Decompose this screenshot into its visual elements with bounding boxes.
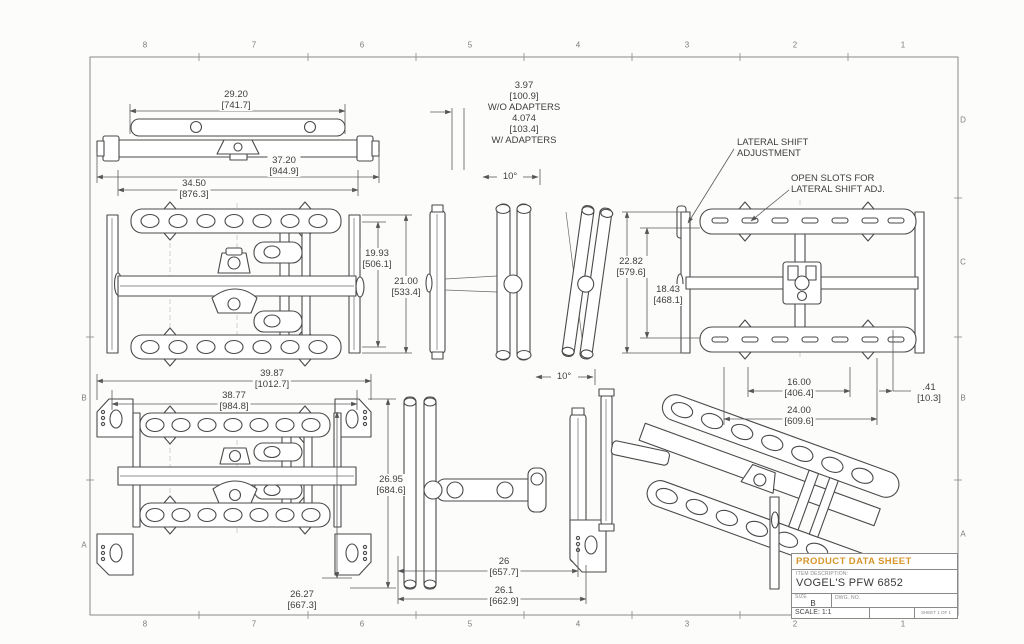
dim-inches: 3.97 bbox=[488, 80, 560, 91]
note-line: OPEN SLOTS FOR bbox=[791, 174, 885, 185]
note-line: ADJUSTMENT bbox=[737, 149, 808, 160]
dim-inches: 38.77 bbox=[219, 390, 248, 401]
title-block-item: ITEM DESCRIPTION: VOGEL'S PFW 6852 bbox=[792, 570, 957, 594]
note-open-slots: OPEN SLOTS FOR LATERAL SHIFT ADJ. bbox=[791, 174, 885, 195]
zone-top-5: 5 bbox=[468, 41, 472, 50]
dim-mm: [468.1] bbox=[653, 295, 682, 306]
zone-bottom-4: 4 bbox=[576, 620, 580, 629]
note-line: LATERAL SHIFT ADJ. bbox=[791, 185, 885, 196]
dim-mm: [1012.7] bbox=[255, 379, 289, 390]
note-lateral-shift: LATERAL SHIFT ADJUSTMENT bbox=[737, 138, 808, 159]
dim-mm: [876.3] bbox=[179, 189, 208, 200]
dim-height-26-95: 26.95 [684.6] bbox=[374, 474, 407, 496]
zone-bottom-6: 6 bbox=[360, 620, 364, 629]
zone-right-d: D bbox=[960, 116, 966, 125]
note-line: LATERAL SHIFT bbox=[737, 138, 808, 149]
zone-top-3: 3 bbox=[685, 41, 689, 50]
dim-mm: [662.9] bbox=[489, 596, 518, 607]
dim-width-34-50: 34.50 [876.3] bbox=[177, 178, 210, 200]
dim-angle-bottom: 10° bbox=[555, 371, 573, 382]
dim-inches: 26 bbox=[489, 556, 518, 567]
zone-top-7: 7 bbox=[252, 41, 256, 50]
zone-top-6: 6 bbox=[360, 41, 364, 50]
zone-bottom-3: 3 bbox=[685, 620, 689, 629]
dim-height-26-27: 26.27 [667.3] bbox=[285, 589, 318, 611]
scale-label: SCALE: 1:1 bbox=[792, 608, 870, 618]
zone-bottom-5: 5 bbox=[468, 620, 472, 629]
dim-mm: [609.6] bbox=[784, 416, 813, 427]
dim-width-38-77: 38.77 [984.8] bbox=[217, 390, 250, 412]
note-line: W/ ADAPTERS bbox=[488, 135, 560, 146]
dim-inches: 26.27 bbox=[287, 589, 316, 600]
zone-bottom-8: 8 bbox=[143, 620, 147, 629]
dim-mm: [657.7] bbox=[489, 567, 518, 578]
zone-right-a: A bbox=[960, 530, 965, 539]
dim-mm: [984.8] bbox=[219, 401, 248, 412]
zone-top-4: 4 bbox=[576, 41, 580, 50]
zone-top-8: 8 bbox=[143, 41, 147, 50]
dim-height-18-43: 18.43 [468.1] bbox=[651, 284, 684, 306]
zone-top-1: 1 bbox=[901, 41, 905, 50]
dim-width-26-1: 26.1 [662.9] bbox=[487, 585, 520, 607]
zone-bottom-2: 2 bbox=[793, 620, 797, 629]
dim-width-39-87: 39.87 [1012.7] bbox=[253, 368, 291, 390]
view-wall-plate bbox=[677, 202, 924, 359]
zone-left-a: A bbox=[81, 541, 86, 550]
size-cell: SIZE B bbox=[792, 594, 832, 607]
view-side-tilted bbox=[562, 205, 614, 360]
dim-inches: 26.1 bbox=[489, 585, 518, 596]
dim-mm: [10.3] bbox=[917, 393, 941, 404]
dim-mm: [406.4] bbox=[784, 388, 813, 399]
dim-inches: 26.95 bbox=[376, 474, 405, 485]
dim-inches: 24.00 bbox=[784, 405, 813, 416]
view-top-wall-bar bbox=[97, 119, 379, 161]
dim-width-16-00: 16.00 [406.4] bbox=[782, 377, 815, 399]
dim-mm: [103.4] bbox=[488, 124, 560, 135]
view-front-mount bbox=[107, 202, 364, 366]
dim-inches: 39.87 bbox=[255, 368, 289, 379]
title-block-scale-row: SCALE: 1:1 SHEET 1 OF 1 bbox=[792, 608, 957, 618]
dim-inches: 4.074 bbox=[488, 113, 560, 124]
dwg-label: DWG. NO. bbox=[835, 595, 957, 601]
dim-mm: [100.9] bbox=[488, 91, 560, 102]
dim-mm: [944.9] bbox=[269, 166, 298, 177]
dim-angle-top: 10° bbox=[501, 171, 519, 182]
title-block-empty-cell bbox=[870, 608, 915, 618]
dim-width-26: 26 [657.7] bbox=[487, 556, 520, 578]
zone-right-b: B bbox=[960, 394, 965, 403]
dim-mm: [533.4] bbox=[391, 287, 420, 298]
zone-right-c: C bbox=[960, 258, 966, 267]
dwg-cell: DWG. NO. bbox=[832, 594, 957, 607]
dim-mm: [579.6] bbox=[616, 267, 645, 278]
dim-mm: [506.1] bbox=[362, 259, 391, 270]
dim-inches: 37.20 bbox=[269, 155, 298, 166]
zone-left-b: B bbox=[81, 394, 86, 403]
zone-bottom-1: 1 bbox=[901, 620, 905, 629]
dim-width-0-41: .41 [10.3] bbox=[915, 382, 943, 404]
dim-width-24-00: 24.00 [609.6] bbox=[782, 405, 815, 427]
dim-width-37-20: 37.20 [944.9] bbox=[267, 155, 300, 177]
dim-height-22-82: 22.82 [579.6] bbox=[614, 256, 647, 278]
item-description-value: VOGEL'S PFW 6852 bbox=[796, 577, 957, 589]
dim-inches: 19.93 bbox=[362, 248, 391, 259]
dim-inches: 21.00 bbox=[391, 276, 420, 287]
dim-inches: 16.00 bbox=[784, 377, 813, 388]
dim-inches: 34.50 bbox=[179, 178, 208, 189]
dim-width-29-20: 29.20 [741.7] bbox=[219, 89, 252, 111]
zone-bottom-7: 7 bbox=[252, 620, 256, 629]
dim-inches: 22.82 bbox=[616, 256, 645, 267]
title-block-header: PRODUCT DATA SHEET bbox=[792, 554, 957, 570]
view-side-folded bbox=[426, 204, 531, 360]
dim-inches: 29.20 bbox=[221, 89, 250, 100]
dim-inches: .41 bbox=[917, 382, 941, 393]
dim-mm: [741.7] bbox=[221, 100, 250, 111]
size-value: B bbox=[795, 600, 831, 607]
title-block: PRODUCT DATA SHEET ITEM DESCRIPTION: VOG… bbox=[791, 553, 958, 619]
drawing-sheet: 8 7 6 5 4 3 2 1 8 7 6 5 4 3 2 1 B A D C … bbox=[0, 0, 1024, 644]
dim-height-19-93: 19.93 [506.1] bbox=[360, 248, 393, 270]
dim-inches: 18.43 bbox=[653, 284, 682, 295]
sheet-label: SHEET 1 OF 1 bbox=[915, 608, 957, 618]
dim-mm: [684.6] bbox=[376, 485, 405, 496]
dim-height-21-00: 21.00 [533.4] bbox=[389, 276, 422, 298]
note-adapter-depth: 3.97 [100.9] W/O ADAPTERS 4.074 [103.4] … bbox=[486, 80, 562, 146]
zone-top-2: 2 bbox=[793, 41, 797, 50]
note-line: W/O ADAPTERS bbox=[488, 102, 560, 113]
dim-mm: [667.3] bbox=[287, 600, 316, 611]
view-front-large bbox=[97, 399, 371, 575]
title-block-size-row: SIZE B DWG. NO. bbox=[792, 594, 957, 608]
